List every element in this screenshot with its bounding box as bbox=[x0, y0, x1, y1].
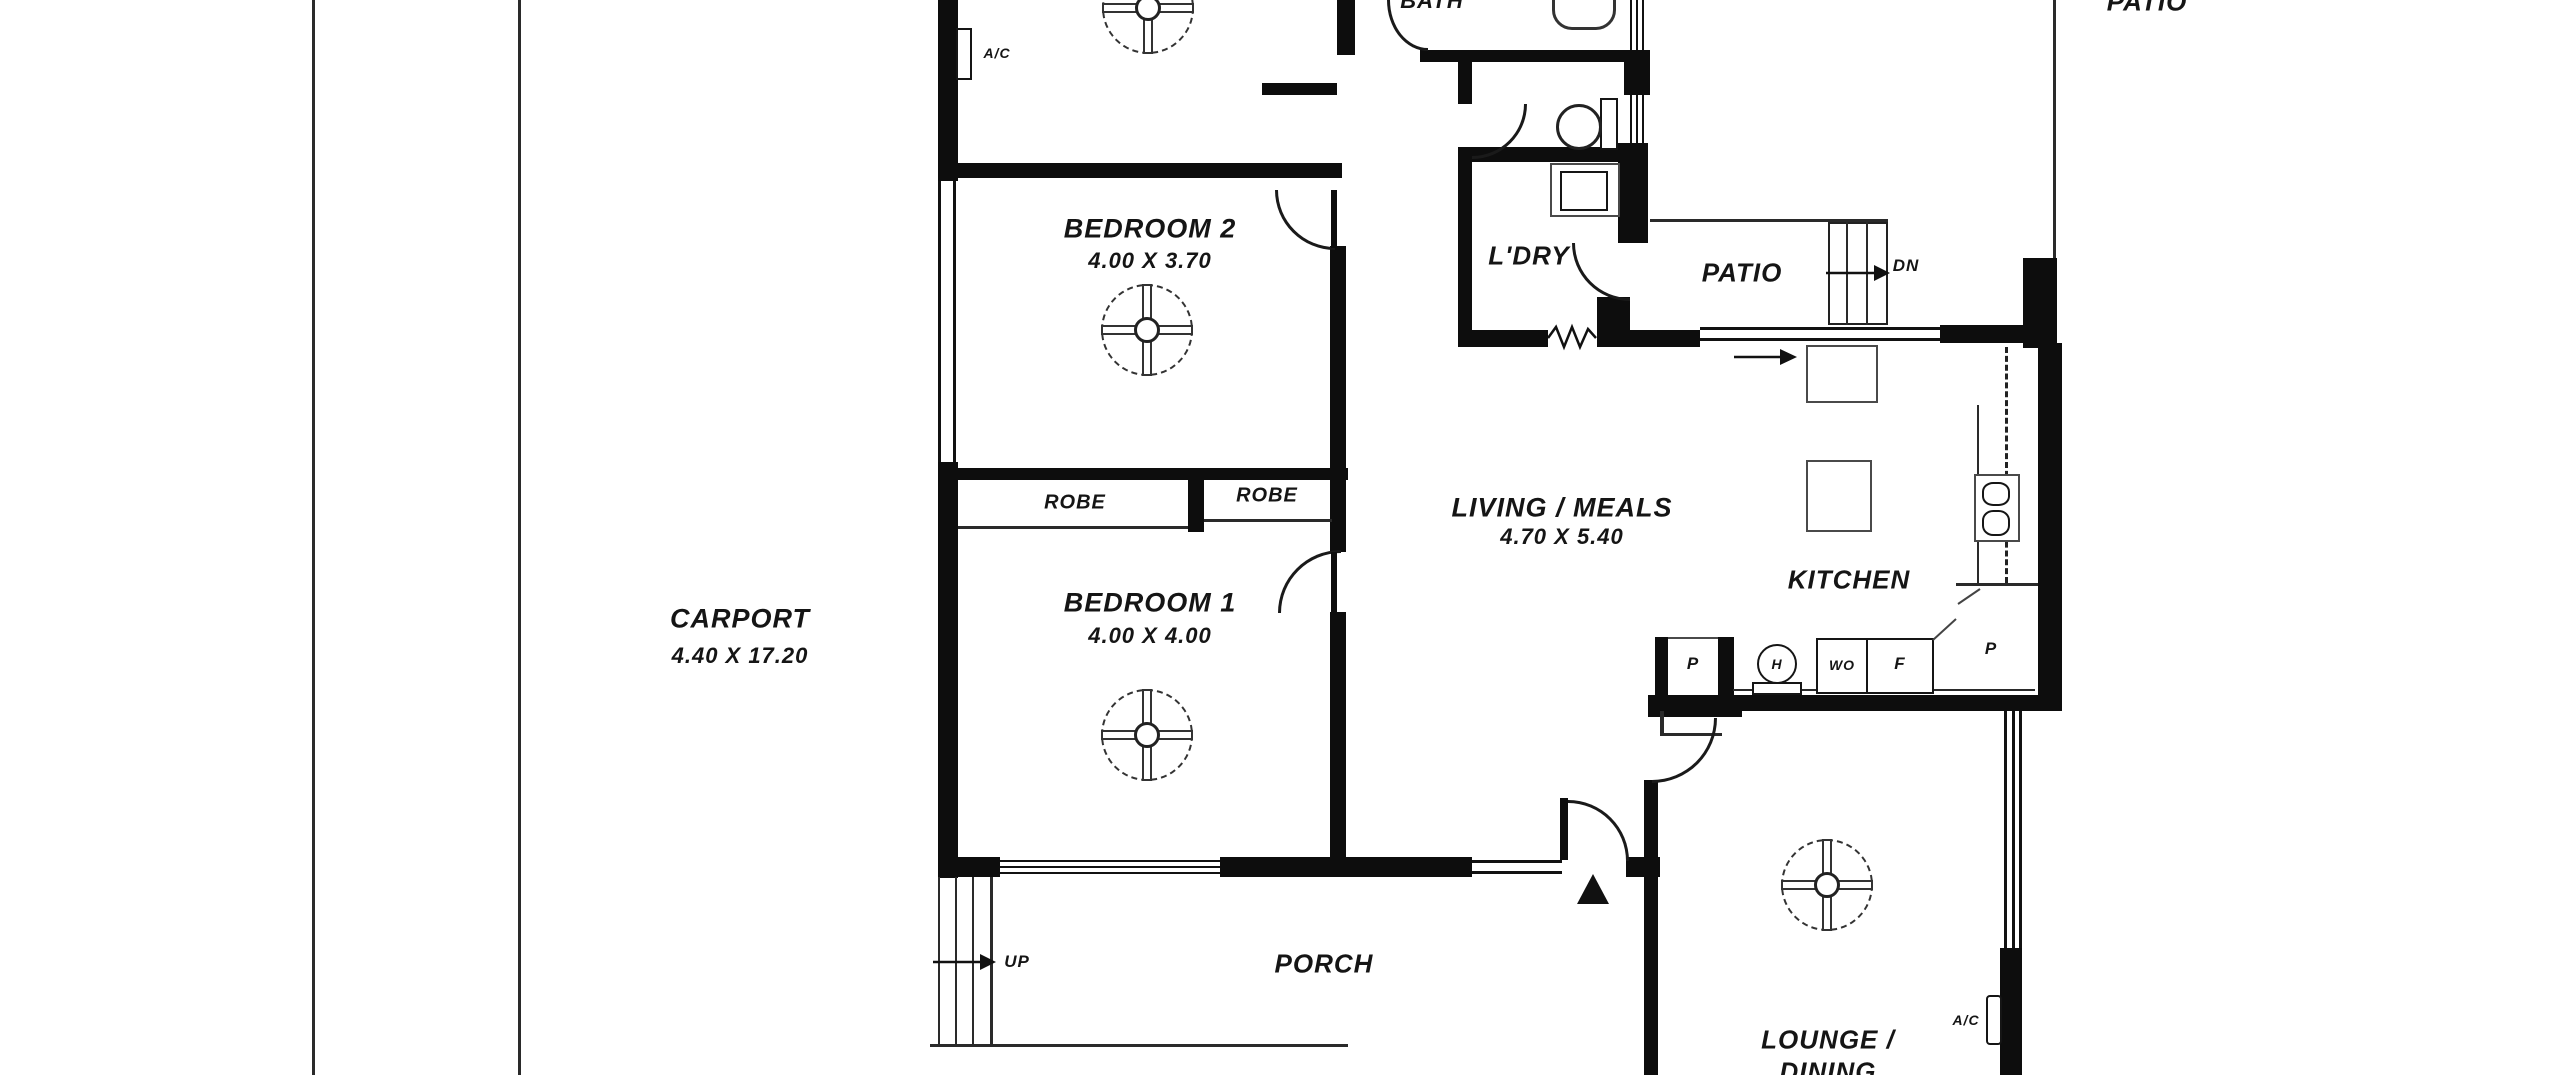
wall bbox=[1655, 637, 1668, 695]
porch-up-arrow-head bbox=[980, 954, 996, 970]
wall bbox=[1458, 147, 1472, 347]
wall bbox=[1337, 0, 1355, 55]
wall bbox=[938, 0, 958, 181]
wall bbox=[938, 462, 958, 878]
room-dims-bedroom2: 4.00 X 3.70 bbox=[1088, 248, 1212, 274]
room-label-bedroom1: BEDROOM 1 bbox=[1064, 588, 1237, 619]
porch-step-line bbox=[938, 877, 940, 1046]
room-label-bath: BATH bbox=[1400, 0, 1463, 14]
sink-bowl bbox=[1982, 510, 2010, 536]
wall bbox=[956, 163, 1342, 178]
kitchen-bench bbox=[1806, 345, 1878, 403]
robe-front-line bbox=[1204, 519, 1332, 522]
room-label-porch: PORCH bbox=[1275, 949, 1374, 980]
stair-tread-line bbox=[1866, 222, 1868, 325]
porch-step-line bbox=[955, 877, 957, 1046]
toilet-bowl bbox=[1556, 104, 1602, 150]
ceiling-fan bbox=[1102, 0, 1194, 54]
appliance-fridge: F bbox=[1894, 654, 1905, 674]
wall bbox=[1262, 83, 1337, 95]
ceiling-fan bbox=[1781, 839, 1873, 931]
window bbox=[1630, 0, 1644, 50]
porch-step-line bbox=[972, 877, 974, 1046]
wall bbox=[1610, 330, 1700, 347]
pantry-corner-diagonal bbox=[1933, 619, 1956, 640]
wall bbox=[938, 857, 1000, 877]
door-leaf bbox=[1560, 798, 1568, 860]
wall bbox=[1718, 637, 1734, 695]
wall bbox=[1940, 325, 2040, 343]
ceiling-fan bbox=[1101, 689, 1193, 781]
wall bbox=[2000, 948, 2022, 1075]
island-bench bbox=[1806, 460, 1872, 532]
wall bbox=[1330, 612, 1346, 859]
door-leaf bbox=[1331, 552, 1337, 612]
boundary-line-left bbox=[312, 0, 315, 1075]
stairs-up-label: UP bbox=[1004, 952, 1030, 972]
ceiling-fan bbox=[1101, 284, 1193, 376]
ac-unit bbox=[1986, 995, 2002, 1045]
entry-arrow-head bbox=[1780, 349, 1797, 365]
room-label-living-meals: LIVING / MEALS bbox=[1451, 493, 1672, 524]
room-label-carport: CARPORT bbox=[670, 604, 810, 635]
room-dims-living-meals: 4.70 X 5.40 bbox=[1500, 524, 1624, 550]
ac-label-top: A/C bbox=[983, 45, 1010, 61]
wall bbox=[1220, 857, 1472, 877]
wall bbox=[1618, 143, 1648, 243]
ac-unit bbox=[956, 28, 972, 80]
porch-edge-line bbox=[930, 1044, 1348, 1047]
stairs-dn-label: DN bbox=[1893, 256, 1920, 276]
wall bbox=[1458, 50, 1472, 104]
appliance-pantry-corner: P bbox=[1985, 639, 1997, 659]
wall bbox=[1644, 780, 1658, 1075]
room-dims-bedroom1: 4.00 X 4.00 bbox=[1088, 623, 1212, 649]
room-label-kitchen: KITCHEN bbox=[1788, 565, 1911, 596]
door-arc bbox=[1275, 190, 1335, 250]
basin bbox=[1552, 0, 1616, 30]
door-arc bbox=[1652, 718, 1717, 783]
wall bbox=[1330, 246, 1346, 552]
floor-plan: CARPORT 4.40 X 17.20 BEDROOM 2 4.00 X 3.… bbox=[0, 0, 2560, 1075]
window bbox=[2004, 711, 2022, 951]
front-entry-triangle bbox=[1577, 874, 1609, 904]
stair-tread-line bbox=[1846, 222, 1848, 325]
room-dims-carport: 4.40 X 17.20 bbox=[672, 643, 809, 669]
window bbox=[938, 181, 956, 463]
window bbox=[1000, 860, 1220, 874]
fan-hub bbox=[1814, 872, 1840, 898]
wall bbox=[2038, 343, 2062, 711]
door-arc bbox=[1568, 800, 1629, 861]
wall bbox=[1626, 857, 1660, 877]
wall bbox=[958, 468, 1348, 480]
carport-edge-line bbox=[518, 0, 521, 1075]
fan-hub bbox=[1134, 317, 1160, 343]
hot-water-base bbox=[1752, 682, 1802, 695]
door-leaf bbox=[1331, 190, 1337, 248]
wall bbox=[1624, 50, 1650, 95]
wall bbox=[1420, 50, 1630, 62]
bench-corner-diagonal bbox=[1958, 589, 1980, 604]
wall bbox=[1458, 330, 1548, 347]
appliance-wall-oven: WO bbox=[1829, 657, 1855, 673]
kitchen-window-bench bbox=[1700, 327, 1940, 341]
toilet-cistern bbox=[1600, 98, 1618, 150]
ac-label-lounge: A/C bbox=[1952, 1012, 1979, 1028]
appliance-hot-water: H bbox=[1771, 656, 1782, 672]
door-arc bbox=[1572, 243, 1630, 301]
wall bbox=[1188, 468, 1204, 532]
sink-bowl bbox=[1982, 482, 2010, 506]
bench-edge-line bbox=[1956, 583, 2038, 586]
window bbox=[1630, 95, 1644, 143]
window bbox=[1472, 860, 1562, 874]
room-label-dining: DINING bbox=[1780, 1057, 1877, 1075]
plan-symbols bbox=[0, 0, 2560, 1075]
room-label-lounge: LOUNGE / bbox=[1761, 1025, 1895, 1056]
flexible-wall-zigzag bbox=[1548, 327, 1596, 347]
robe-label-left: ROBE bbox=[1044, 492, 1106, 515]
appliance-pantry-left: P bbox=[1687, 654, 1699, 674]
overhead-cupboard-line bbox=[2005, 347, 2008, 583]
laundry-trough-bowl bbox=[1560, 171, 1608, 211]
room-label-bedroom2: BEDROOM 2 bbox=[1064, 214, 1237, 245]
stairs-down bbox=[1828, 222, 1888, 325]
fan-hub bbox=[1134, 722, 1160, 748]
robe-front-line bbox=[958, 526, 1188, 529]
room-label-patio-middle: PATIO bbox=[1702, 258, 1783, 289]
porch-step-line bbox=[990, 877, 993, 1046]
patio-right-line bbox=[2053, 0, 2056, 260]
room-label-laundry: L'DRY bbox=[1488, 241, 1570, 272]
robe-label-right: ROBE bbox=[1236, 485, 1298, 508]
room-label-patio-top: PATIO bbox=[2107, 0, 2188, 18]
